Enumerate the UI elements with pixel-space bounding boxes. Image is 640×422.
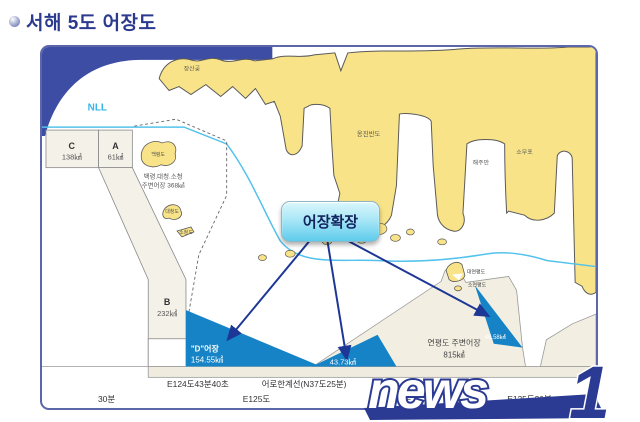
fishing-limit-label: 어로한계선(N37도25분) [262,379,347,389]
news1-text-news: news [368,362,488,420]
d-zone-area-label: 154.55㎢ [191,356,223,365]
somupo-label: 소무포 [516,149,533,156]
zone-a-area: 61㎢ [108,153,124,162]
zone-b-strip [99,168,186,367]
zone-c-area: 138㎢ [62,153,82,162]
haeju-bay-label: 해주만 [473,159,490,167]
arrow-to-d-zone [228,238,312,340]
daeyeonpyeongdo-island [446,262,465,281]
bullet-icon [9,16,20,27]
soyeonpyeongdo-island [455,286,462,291]
news1-text-one: 1 [569,356,610,422]
zone-c-name: C [69,141,76,151]
nll-label: NLL [88,102,107,113]
baengnyeongdo-label: 백령도 [151,151,165,158]
socheongdo-label: 소청도 [179,230,193,236]
bdsc-ground-label-line1: 백령.대청.소청 [144,172,183,181]
e125-coordinate-label: E125도 [243,394,271,404]
title-row: 서해 5도 어장도 [9,8,157,35]
zone-b-name: B [164,297,171,307]
zone-a-name: A [112,141,119,151]
yeonpyeong-ground-label-line1: 연평도 주변어장 [427,338,480,348]
infographic-page: 서해 5도 어장도 [0,0,640,422]
zone-b-white-box [148,339,186,367]
news1-watermark: news 1 [364,356,640,422]
page-title: 서해 5도 어장도 [26,8,157,35]
e124-coordinate-label: E124도43분40초 [167,379,229,389]
ongjin-peninsula-label: 옹진반도 [357,129,381,138]
daecheongdo-label: 대청도 [165,208,179,215]
arrow-to-mid-triangle [327,238,347,360]
bdsc-ground-label-line2: 주변어장 368㎢ [142,180,185,189]
news1-logo: news 1 [364,356,640,422]
mid-triangle-area-label: 43.73㎢ [330,357,357,366]
jangsangot-label: 장산곶 [184,65,201,73]
right-triangle-area-label: 46.58㎢ [485,333,506,341]
zone-b-area: 232㎢ [157,309,177,318]
d-zone-name-label: "D"어장 [191,344,220,354]
soyeonpyeongdo-label: 소연평도 [468,281,487,288]
expansion-callout: 어장확장 [281,201,380,242]
min30-left-label: 30분 [98,394,115,404]
daeyeonpyeongdo-label: 대연평도 [467,269,486,276]
